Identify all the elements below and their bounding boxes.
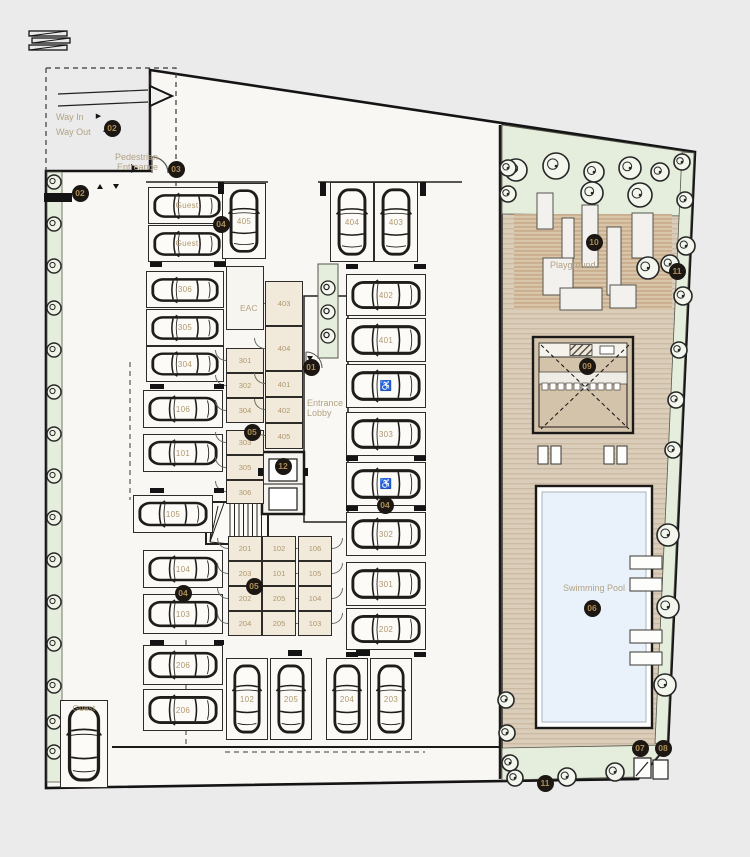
wall-stub (214, 640, 224, 645)
tree-center-dot (591, 192, 594, 195)
parking-stall: 206 (143, 689, 223, 731)
storage-room: 301 (226, 348, 264, 373)
way-in-text: Way In (56, 112, 84, 122)
stall-label: 404 (331, 183, 373, 261)
stall-label: Guest (149, 188, 225, 223)
plan-marker-02: 02 (104, 120, 121, 137)
stall-label: 304 (147, 347, 223, 381)
wall-stub (258, 468, 263, 476)
wall-stub (414, 652, 426, 657)
parking-stall: 105 (133, 495, 213, 533)
storage-room: 204 (228, 611, 262, 636)
tree-center-dot (684, 199, 687, 202)
parking-stall: 205 (270, 658, 312, 740)
swimming-pool-label: Swimming Pool (549, 583, 639, 593)
plan-marker-01: 01 (303, 359, 320, 376)
tree-icon (47, 553, 61, 567)
stall-label: 202 (347, 609, 425, 649)
tree-center-dot (667, 534, 670, 537)
logo (28, 30, 72, 59)
pergola (533, 337, 633, 433)
stall-label: 206 (144, 646, 222, 684)
parking-stall: 401 (346, 318, 426, 362)
parking-stall: 106 (143, 390, 223, 428)
wall-stub (214, 384, 224, 389)
plan-marker-11: 11 (537, 775, 554, 792)
parking-stall: 101 (143, 434, 223, 472)
stall-label: 206 (144, 690, 222, 730)
parking-stall: 404 (330, 182, 374, 262)
tree-center-dot (675, 399, 678, 402)
storage-room: 403 (265, 281, 303, 326)
storage-room: 306 (226, 480, 264, 504)
pedestrian-entrance-label: Pedestrian Entreance (96, 152, 158, 173)
stall-label: 302 (347, 513, 425, 555)
tree-icon (47, 301, 61, 315)
plan-marker-04: 04 (213, 216, 230, 233)
parking-stall: 102 (226, 658, 268, 740)
storage-room: 404 (265, 326, 303, 371)
stall-label: 102 (227, 659, 267, 739)
tree-icon (47, 217, 61, 231)
stall-label: 203 (371, 659, 411, 739)
floor-plan-canvas: Way In ▶ Way Out ◀ Pedestrian Entreance … (0, 0, 750, 857)
tree-icon (47, 595, 61, 609)
wheelchair-icon: ♿ (347, 365, 425, 407)
way-out-text: Way Out (56, 127, 91, 137)
wall-stub (303, 468, 308, 476)
plan-marker-04: 04 (175, 585, 192, 602)
stall-label: 305 (147, 310, 223, 345)
plan-marker-10: 10 (586, 234, 603, 251)
tree-center-dot (629, 167, 632, 170)
parking-stall: 203 (370, 658, 412, 740)
tree-center-dot (659, 171, 662, 174)
parking-stall: 403 (374, 182, 418, 262)
pergola-grill (570, 345, 592, 356)
tree-center-dot (514, 777, 517, 780)
wall-stub (150, 384, 164, 389)
stall-label: 205 (271, 659, 311, 739)
tree-center-dot (614, 771, 617, 774)
stall-label: Guest (61, 701, 107, 787)
stall-label: 101 (144, 435, 222, 471)
plan-marker-07: 07 (632, 740, 649, 757)
tree-icon (47, 427, 61, 441)
wall-stub (44, 193, 72, 202)
tree-icon (47, 745, 61, 759)
stall-label: 306 (147, 272, 223, 307)
plan-marker-02: 02 (72, 185, 89, 202)
storage-room: 101 (262, 561, 296, 586)
parking-stall: 301 (346, 562, 426, 606)
storage-room: 201 (228, 536, 262, 561)
tree-icon (47, 175, 61, 189)
wall-stub (214, 262, 226, 267)
plan-marker-05: 05 (244, 424, 261, 441)
parking-stall: 206 (143, 645, 223, 685)
storage-room: 205 (262, 586, 296, 611)
way-out-label: Way Out ◀ (56, 127, 108, 137)
tree-icon (47, 259, 61, 273)
storage-room: 104 (298, 586, 332, 611)
parking-stall: 303 (346, 412, 426, 456)
storage-room: 401 (265, 371, 303, 397)
stall-label: 106 (144, 391, 222, 427)
eac-room (226, 266, 264, 330)
stall-label: 402 (347, 275, 425, 315)
wall-stub (414, 456, 426, 461)
tree-center-dot (667, 606, 670, 609)
parking-stall: 304 (146, 346, 224, 382)
entrance-lobby-label: Entrance Lobby (307, 398, 349, 419)
tree-center-dot (678, 349, 681, 352)
tree-center-dot (682, 295, 685, 298)
wall-stub (320, 182, 326, 196)
tree-center-dot (685, 245, 688, 248)
parking-stall: 305 (146, 309, 224, 346)
stall-label: 105 (134, 496, 212, 532)
wall-stub (346, 264, 358, 269)
parking-stall: 104 (143, 550, 223, 588)
wall-stub (214, 488, 224, 493)
tree-center-dot (639, 194, 642, 197)
plan-marker-04: 04 (377, 497, 394, 514)
wall-stub (150, 488, 164, 493)
plan-marker-06: 06 (584, 600, 601, 617)
tree-center-dot (664, 684, 667, 687)
tree-center-dot (505, 699, 508, 702)
way-in-label: Way In ▶ (56, 112, 101, 122)
parking-stall: 306 (146, 271, 224, 308)
tree-center-dot (647, 267, 650, 270)
wall-stub (420, 182, 426, 196)
stall-label: 301 (347, 563, 425, 605)
tree-icon (47, 637, 61, 651)
stall-label: 204 (327, 659, 367, 739)
tree-icon (47, 469, 61, 483)
parking-stall: 204 (326, 658, 368, 740)
stall-label: Guest (149, 226, 225, 261)
plan-marker-09: 09 (579, 358, 596, 375)
parking-stall: Guest (148, 225, 226, 262)
tree-icon (47, 715, 61, 729)
storage-room: 205 (262, 611, 296, 636)
plan-marker-11: 11 (669, 263, 686, 280)
parking-stall: 402 (346, 274, 426, 316)
wall-stub (346, 456, 358, 461)
wall-stub (218, 182, 224, 194)
tree-icon (47, 511, 61, 525)
plan-marker-05: 05 (246, 578, 263, 595)
storage-room: 103 (298, 611, 332, 636)
wall-stub (150, 262, 162, 267)
tree-icon (47, 343, 61, 357)
tree-center-dot (507, 193, 510, 196)
parking-stall: 302 (346, 512, 426, 556)
storage-room: 102 (262, 536, 296, 561)
way-in-arrow-icon: ▶ (96, 113, 101, 121)
tree-center-dot (507, 167, 510, 170)
stall-label: 104 (144, 551, 222, 587)
wall-stub (414, 506, 426, 511)
wall-stub (346, 506, 358, 511)
stall-label: 403 (375, 183, 417, 261)
eac-label: EAC (240, 304, 257, 314)
tree-center-dot (593, 171, 596, 174)
tree-center-dot (681, 161, 684, 164)
entrance-lobby (304, 264, 348, 522)
plan-marker-08: 08 (655, 740, 672, 757)
plan-marker-03: 03 (168, 161, 185, 178)
tree-center-dot (506, 732, 509, 735)
tree-center-dot (555, 165, 558, 168)
tree-center-dot (566, 776, 569, 779)
stall-label: 303 (347, 413, 425, 455)
storage-room: 105 (298, 561, 332, 586)
tree-icon (47, 385, 61, 399)
storage-room: 405 (265, 423, 303, 449)
tree-center-dot (509, 762, 512, 765)
wall-stub (288, 650, 302, 656)
corner-service-boxes (634, 758, 668, 779)
playground-label: Playground (550, 260, 596, 270)
storage-room: 106 (298, 536, 332, 561)
parking-stall: ♿ (346, 364, 426, 408)
parking-stall: Guest (60, 700, 108, 788)
wall-stub (150, 640, 164, 645)
tree-icon (47, 679, 61, 693)
wall-stub (356, 650, 370, 656)
stall-label: 401 (347, 319, 425, 361)
wall-stub (414, 264, 426, 269)
parking-stall: 202 (346, 608, 426, 650)
tree-center-dot (672, 449, 675, 452)
storage-room: 402 (265, 397, 303, 423)
plan-marker-12: 12 (275, 458, 292, 475)
